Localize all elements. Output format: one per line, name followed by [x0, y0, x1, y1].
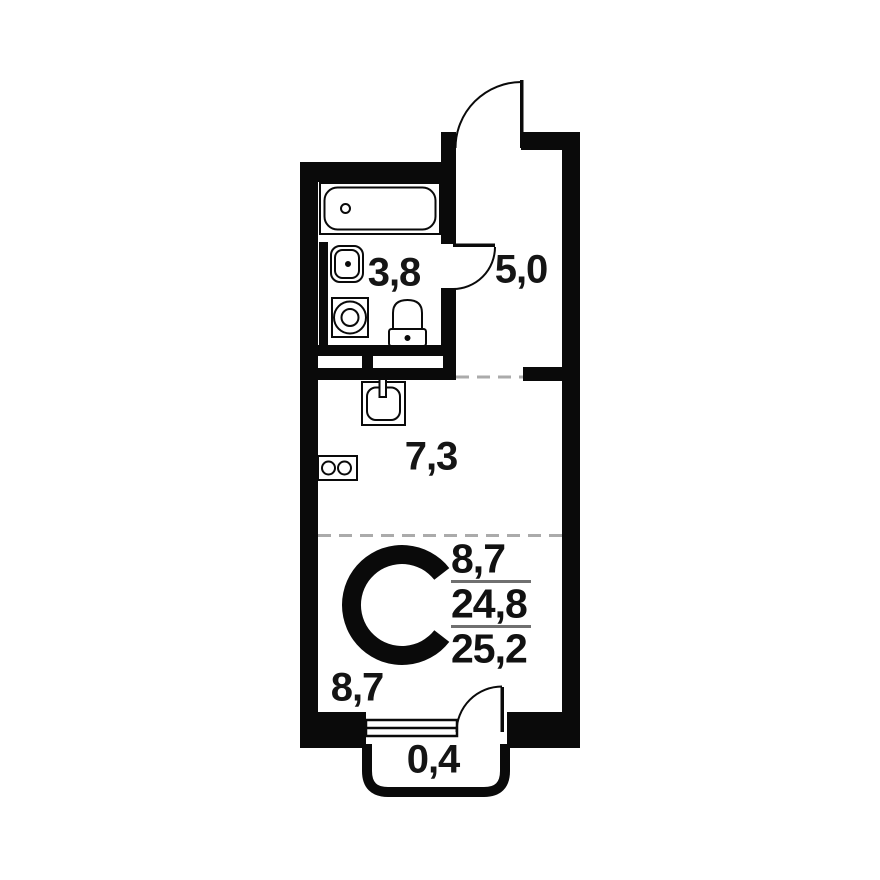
wall-left	[300, 162, 318, 748]
vent-shaft-right	[373, 356, 443, 368]
wall-right	[562, 132, 580, 748]
summary-floor-area: 24,8	[451, 581, 527, 628]
balcony-area-label: 0,4	[407, 738, 460, 783]
wall-bottom-right	[507, 712, 580, 748]
studio-letter-icon	[342, 545, 449, 665]
entry-door-icon	[456, 80, 524, 148]
wall-hall-stub	[523, 367, 562, 381]
washing-machine-icon	[332, 298, 368, 337]
wall-plumbing-chase	[319, 242, 328, 345]
summary-living-area: 8,7	[451, 536, 505, 583]
vent-shaft-icon	[318, 356, 443, 368]
toilet-icon	[389, 300, 426, 346]
vent-shaft-left	[318, 356, 362, 368]
bathtub-icon	[320, 183, 440, 234]
summary-total-area: 25,2	[451, 626, 527, 673]
floorplan-canvas: 3,8 5,0 7,3 8,7 0,4 8,7 24,8 25,2	[0, 0, 880, 880]
wall-top-left	[300, 162, 456, 182]
washbasin-icon	[331, 246, 363, 282]
hallway-area-label: 5,0	[495, 248, 548, 293]
window-icon	[366, 720, 457, 736]
wall-bath-hall-upper	[441, 132, 456, 244]
balcony-door-icon	[457, 687, 505, 733]
bathroom-door-icon	[453, 244, 495, 290]
kitchen-area-label: 7,3	[405, 435, 458, 480]
kitchen-sink-icon	[362, 379, 405, 425]
bathroom-area-label: 3,8	[368, 251, 421, 296]
stove-icon	[318, 456, 357, 480]
wall-bottom-left	[300, 712, 366, 748]
living-room-area-label: 8,7	[331, 666, 384, 711]
